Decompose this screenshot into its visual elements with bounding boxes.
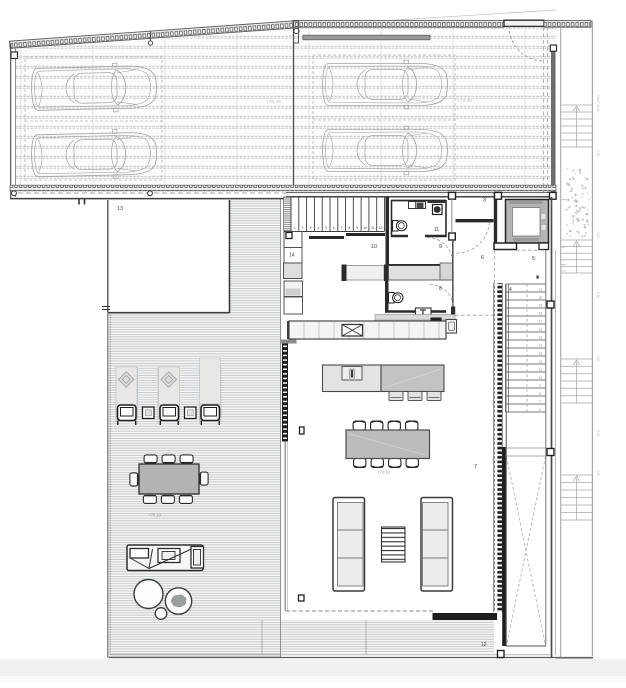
svg-text:9: 9: [439, 244, 442, 250]
svg-text:7: 7: [474, 464, 477, 470]
svg-text:14: 14: [539, 344, 543, 348]
svg-text:13: 13: [117, 206, 123, 212]
svg-text:6,15: 6,15: [596, 430, 600, 436]
svg-text:4,35: 4,35: [596, 150, 600, 156]
svg-text:3: 3: [483, 198, 486, 204]
svg-text:3,20: 3,20: [596, 232, 600, 238]
svg-text:11: 11: [371, 226, 375, 230]
svg-text:18x17,6x28: 18x17,6x28: [596, 95, 600, 112]
svg-text:3: 3: [310, 226, 312, 230]
svg-text:21: 21: [539, 288, 543, 292]
svg-text:4: 4: [317, 226, 319, 230]
svg-text:15: 15: [539, 336, 543, 340]
svg-text:11: 11: [434, 227, 439, 233]
svg-text:10: 10: [371, 244, 377, 250]
svg-text:12: 12: [379, 226, 383, 230]
svg-text:14: 14: [289, 253, 295, 259]
svg-text:8: 8: [349, 226, 351, 230]
svg-text:19: 19: [539, 304, 543, 308]
svg-text:+70.45: +70.45: [266, 99, 281, 105]
svg-text:3,10: 3,10: [596, 470, 600, 476]
svg-text:1: 1: [294, 226, 296, 230]
svg-text:20: 20: [539, 296, 543, 300]
svg-text:11: 11: [539, 368, 542, 372]
svg-text:9: 9: [356, 226, 358, 230]
svg-text:17: 17: [539, 320, 543, 324]
svg-text:18: 18: [539, 312, 543, 316]
svg-text:4,35: 4,35: [596, 355, 600, 361]
svg-text:+70.10: +70.10: [148, 513, 162, 518]
svg-text:+70.45: +70.45: [457, 98, 472, 104]
svg-text:2,80: 2,80: [596, 292, 600, 298]
svg-text:12: 12: [481, 642, 487, 648]
svg-text:16: 16: [539, 328, 543, 332]
svg-text:5: 5: [532, 256, 535, 262]
svg-text:10: 10: [363, 226, 367, 230]
svg-text:2: 2: [302, 226, 304, 230]
svg-text:10: 10: [539, 376, 543, 380]
svg-text:+70.10: +70.10: [377, 470, 391, 475]
svg-text:6: 6: [481, 255, 484, 261]
svg-text:12: 12: [539, 360, 543, 364]
svg-text:4: 4: [509, 287, 512, 293]
svg-text:7: 7: [341, 226, 343, 230]
svg-text:13: 13: [539, 352, 543, 356]
svg-text:5: 5: [325, 226, 327, 230]
svg-text:6: 6: [333, 226, 335, 230]
